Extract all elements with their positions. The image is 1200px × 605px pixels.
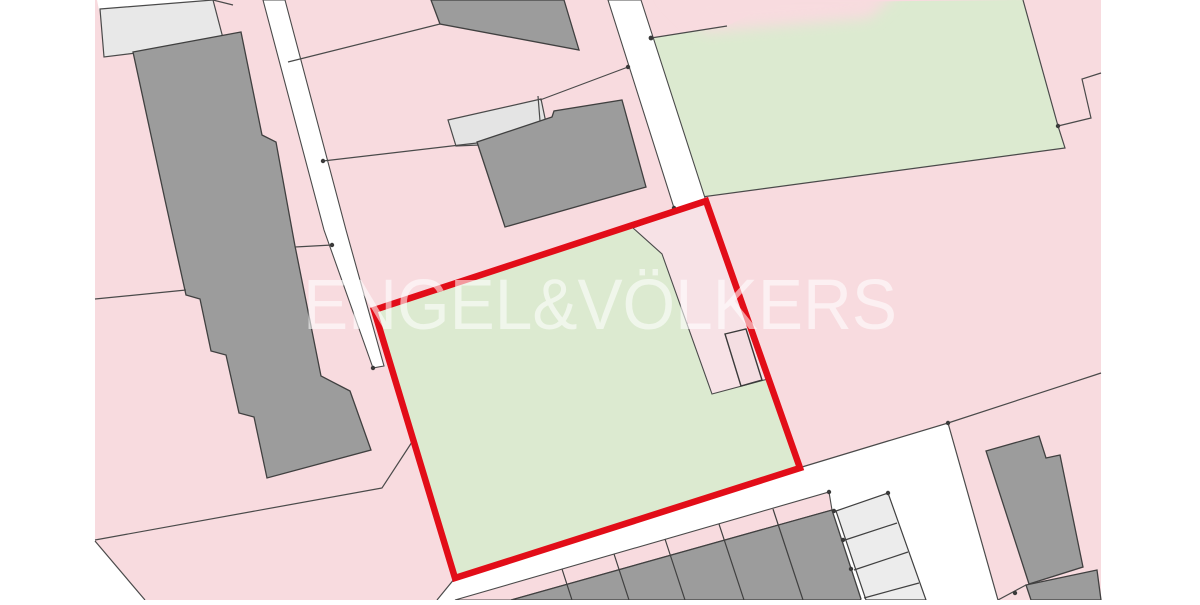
svg-text:ENGEL&VÖLKERS: ENGEL&VÖLKERS <box>303 266 897 345</box>
